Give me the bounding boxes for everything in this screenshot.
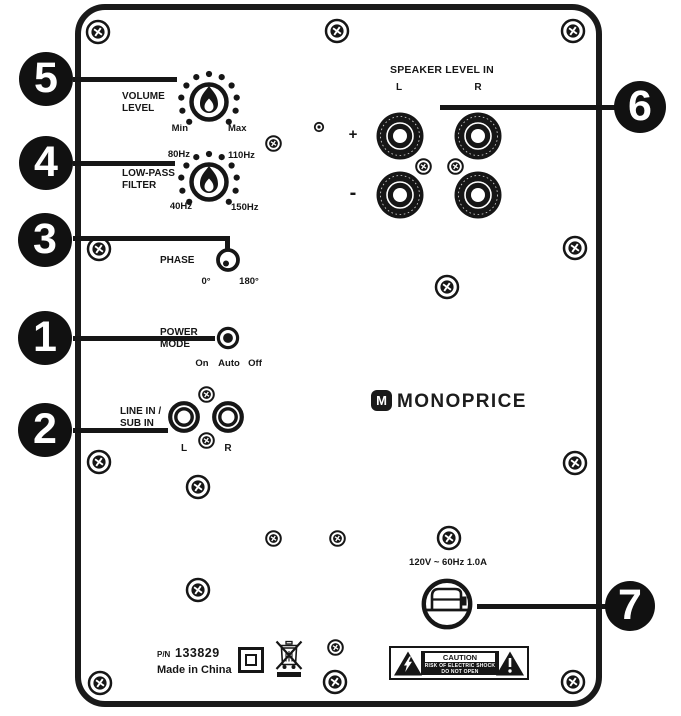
weee-bar-icon xyxy=(277,672,301,677)
weee-bin-icon xyxy=(275,639,303,672)
power-off-label: Off xyxy=(243,359,267,369)
lpf-80hz-label: 80Hz xyxy=(148,150,190,160)
low-pass-filter-label-line2: FILTER xyxy=(122,180,156,191)
speaker-post-right-minus xyxy=(452,169,504,221)
double-insulated-icon xyxy=(238,647,264,673)
warning-exclamation-icon xyxy=(495,650,525,677)
callout-number-1: 1 xyxy=(18,311,72,365)
lpf-110hz-label: 110Hz xyxy=(228,151,255,161)
panel-screw xyxy=(197,385,216,404)
panel-screw xyxy=(433,273,461,301)
line-in-r-label: R xyxy=(221,443,235,454)
lpf-40hz-label: 40Hz xyxy=(150,202,192,212)
rear-panel-diagram: VOLUME LEVEL Min Max LOW-PASS FILTER 80H… xyxy=(0,0,681,716)
volume-level-label-line2: LEVEL xyxy=(122,103,154,114)
panel-screw xyxy=(85,448,113,476)
callout-number-6: 6 xyxy=(614,81,666,133)
power-on-label: On xyxy=(190,359,214,369)
monoprice-logo-text: MONOPRICE xyxy=(397,391,527,413)
panel-screw xyxy=(86,669,114,697)
speaker-post-left-minus xyxy=(374,169,426,221)
volume-level-label-line1: VOLUME xyxy=(122,91,165,102)
callout-number-7: 7 xyxy=(605,581,655,631)
callout-7-leader-line xyxy=(477,604,607,609)
warning-lightning-icon xyxy=(393,650,423,677)
panel-screw xyxy=(446,157,465,176)
phase-label: PHASE xyxy=(160,255,194,266)
power-auto-label: Auto xyxy=(215,359,243,369)
speaker-level-in-label: SPEAKER LEVEL IN xyxy=(367,65,517,77)
panel-screw xyxy=(561,449,589,477)
callout-1-leader-line xyxy=(73,336,215,341)
volume-min-label: Min xyxy=(156,124,188,134)
panel-screw xyxy=(197,431,216,450)
line-in-label-line1: LINE IN / xyxy=(120,406,161,417)
panel-screw xyxy=(321,668,349,696)
callout-3-leader-line xyxy=(73,236,230,241)
line-in-l-label: L xyxy=(177,443,191,454)
fuse-holder xyxy=(419,576,475,632)
phase-180-label: 180° xyxy=(234,277,264,287)
panel-screw xyxy=(184,576,212,604)
panel-screw xyxy=(84,18,112,46)
callout-3-leader-line xyxy=(225,238,230,251)
panel-screw xyxy=(184,473,212,501)
pn-prefix-label: P/N xyxy=(157,651,170,660)
panel-screw xyxy=(559,668,587,696)
speaker-l-label: L xyxy=(391,82,407,93)
caution-label: CAUTION RISK OF ELECTRIC SHOCK DO NOT OP… xyxy=(389,646,529,680)
speaker-minus-label: - xyxy=(344,182,362,204)
phase-0-label: 0° xyxy=(194,277,218,287)
panel-screw xyxy=(559,17,587,45)
caution-text-panel: CAUTION RISK OF ELECTRIC SHOCK DO NOT OP… xyxy=(421,651,499,675)
lpf-150hz-label: 150Hz xyxy=(231,203,258,213)
panel-screw xyxy=(323,17,351,45)
low-pass-filter-label-line1: LOW-PASS xyxy=(122,168,175,179)
speaker-post-left-plus xyxy=(374,110,426,162)
power-mode-switch xyxy=(213,323,243,353)
made-in-label: Made in China xyxy=(157,664,232,676)
caution-line2: DO NOT OPEN xyxy=(421,669,499,675)
speaker-post-right-plus xyxy=(452,110,504,162)
panel-screw xyxy=(326,638,345,657)
panel-screw xyxy=(313,121,325,133)
speaker-r-label: R xyxy=(470,82,486,93)
panel-screw xyxy=(264,134,283,153)
caution-header: CAUTION xyxy=(424,652,496,663)
callout-number-5: 5 xyxy=(19,52,73,106)
callout-2-leader-line xyxy=(73,428,168,433)
part-number: 133829 xyxy=(175,647,220,661)
volume-max-label: Max xyxy=(228,124,246,134)
callout-4-leader-line xyxy=(73,161,175,166)
panel-screw xyxy=(328,529,347,548)
callout-number-3: 3 xyxy=(18,213,72,267)
callout-number-4: 4 xyxy=(19,136,73,190)
power-rating-label: 120V ~ 60Hz 1.0A xyxy=(373,558,523,568)
panel-screw xyxy=(561,234,589,262)
panel-screw xyxy=(435,524,463,552)
callout-number-2: 2 xyxy=(18,403,72,457)
speaker-plus-label: + xyxy=(344,127,362,144)
monoprice-logo-icon: M xyxy=(371,390,392,411)
callout-6-leader-line xyxy=(440,105,618,110)
power-mode-label-line2: MODE xyxy=(160,339,190,350)
panel-screw xyxy=(264,529,283,548)
callout-5-leader-line xyxy=(73,77,177,82)
panel-screw xyxy=(414,157,433,176)
